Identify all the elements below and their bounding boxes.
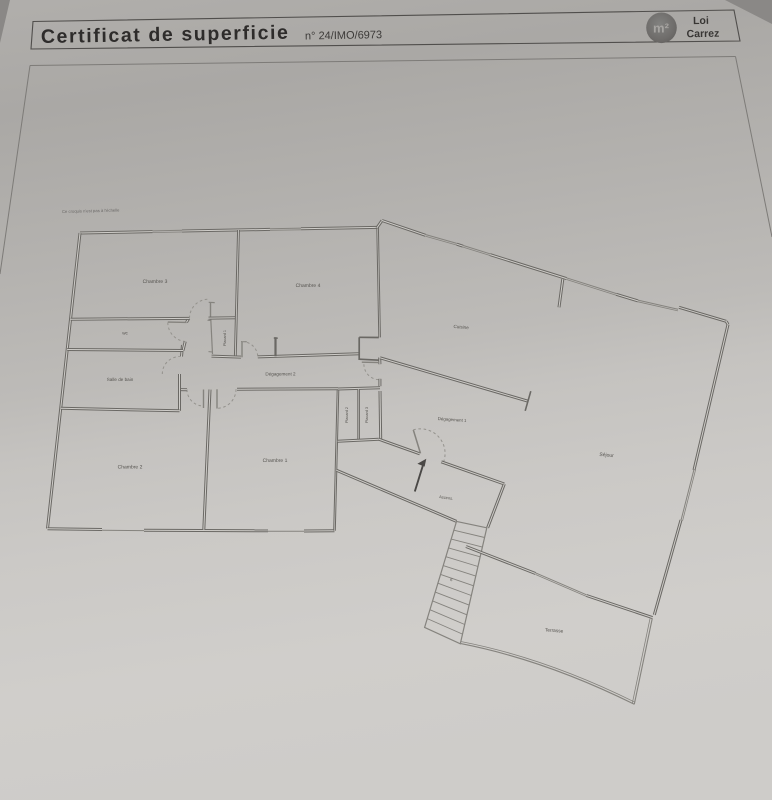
svg-text:Chambre 3: Chambre 3: [143, 279, 168, 285]
svg-text:Placard 3: Placard 3: [365, 407, 369, 423]
svg-text:Chambre 2: Chambre 2: [118, 465, 143, 471]
svg-text:wc: wc: [122, 331, 128, 336]
svg-text:Chambre 1: Chambre 1: [263, 458, 288, 464]
svg-text:Placard 2: Placard 2: [345, 407, 349, 423]
svg-text:Dégagement 2: Dégagement 2: [265, 372, 296, 377]
svg-text:Salle de bain: Salle de bain: [107, 377, 134, 382]
svg-text:m²: m²: [653, 21, 670, 36]
svg-text:Placard 1: Placard 1: [223, 330, 227, 346]
svg-text:Loi: Loi: [693, 15, 709, 27]
svg-text:Séjour: Séjour: [599, 452, 614, 459]
svg-text:Certificat de superficie: Certificat de superficie: [41, 22, 290, 48]
svg-text:Carrez: Carrez: [687, 28, 720, 41]
svg-text:Chambre 4: Chambre 4: [296, 283, 321, 289]
svg-text:n° 24/IMO/6973: n° 24/IMO/6973: [305, 29, 382, 42]
